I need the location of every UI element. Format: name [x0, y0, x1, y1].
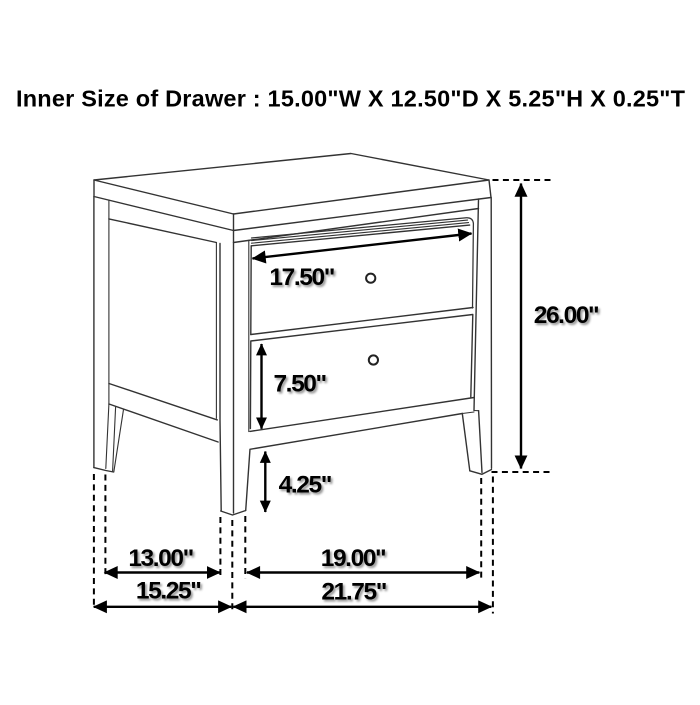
svg-text:26.00": 26.00": [534, 302, 599, 329]
svg-text:Inner Size of Drawer : 15.00"W: Inner Size of Drawer : 15.00"W X 12.50"D…: [16, 85, 686, 111]
svg-text:15.25": 15.25": [136, 577, 201, 604]
svg-text:7.50": 7.50": [273, 370, 325, 397]
svg-text:21.75": 21.75": [321, 578, 386, 605]
svg-text:17.50": 17.50": [269, 264, 334, 291]
svg-text:19.00": 19.00": [321, 545, 386, 572]
svg-text:4.25": 4.25": [279, 471, 331, 498]
svg-text:13.00": 13.00": [128, 545, 193, 572]
